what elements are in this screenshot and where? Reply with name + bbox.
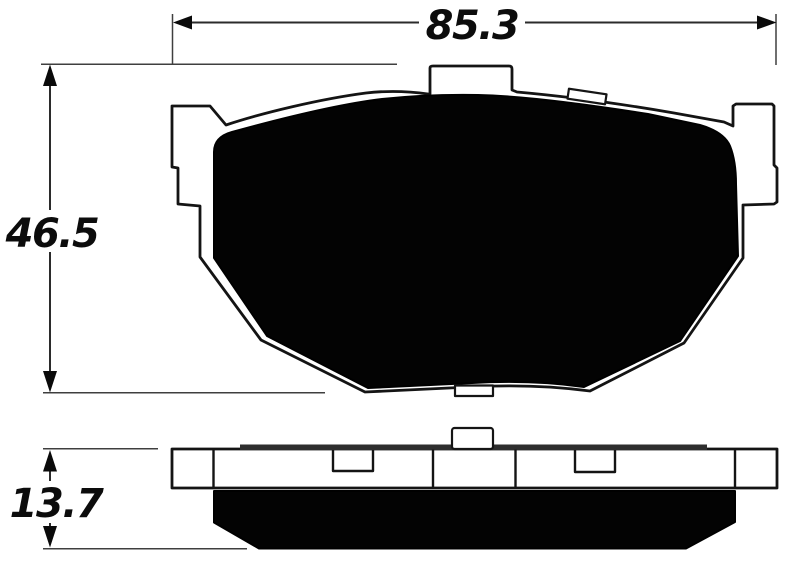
arrowhead-right-icon xyxy=(757,16,777,30)
pad-front-view xyxy=(172,66,777,396)
brake-pad-technical-drawing: 85.3 46.5 13.7 xyxy=(0,0,800,572)
arrowhead-left-icon xyxy=(173,16,192,30)
arrowhead-up-icon xyxy=(43,65,57,87)
bottom-wear-tab xyxy=(455,386,493,397)
dimension-width: 85.3 xyxy=(173,3,777,65)
arrowhead-down-icon xyxy=(43,371,57,393)
thickness-value-label: 13.7 xyxy=(10,481,104,527)
width-value-label: 85.3 xyxy=(426,3,519,49)
friction-material xyxy=(214,95,738,388)
arrowhead-down-icon xyxy=(43,526,57,548)
pad-side-view xyxy=(172,428,777,549)
side-center-tab xyxy=(452,428,493,449)
height-value-label: 46.5 xyxy=(5,211,99,257)
brake-pad-dimension-diagram: 85.3 46.5 13.7 xyxy=(0,0,800,572)
side-friction-material xyxy=(214,491,735,549)
side-backing-plate xyxy=(172,449,777,488)
arrowhead-up-icon xyxy=(43,450,57,472)
